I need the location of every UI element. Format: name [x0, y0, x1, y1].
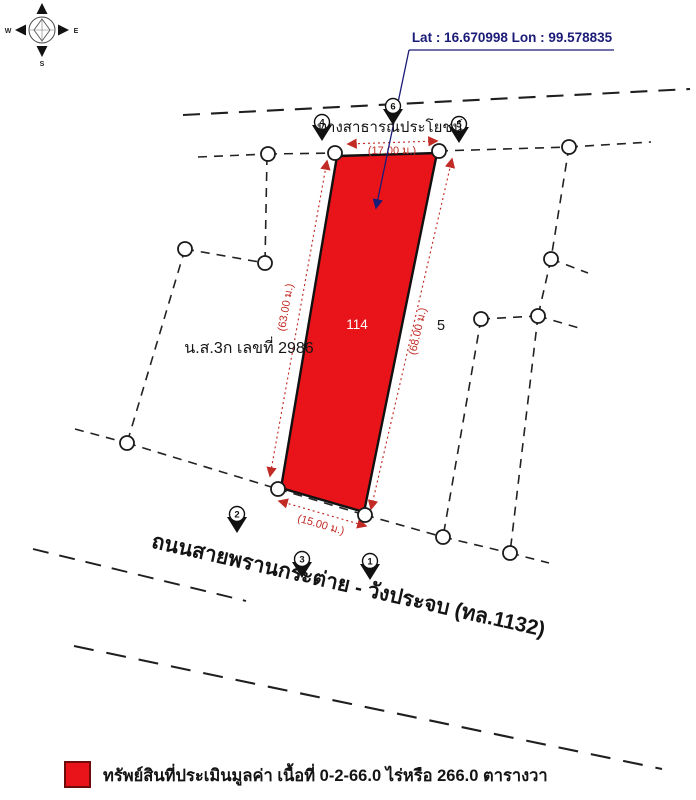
parcel-number-label: 114 [346, 317, 368, 332]
dimension-label-bottom: (15.00 ม.) [296, 513, 346, 538]
dimension-line-top [348, 141, 437, 144]
coordinates-label: Lat : 16.670998 Lon : 99.578835 [412, 30, 613, 45]
survey-map-page: (17.00 ม.) (63.00 ม.) (68.00 ม.) (15.00 … [0, 0, 696, 800]
compass-rose: W E S [5, 3, 79, 68]
survey-map-canvas: (17.00 ม.) (63.00 ม.) (68.00 ม.) (15.00 … [0, 0, 696, 800]
legend-label: ทรัพย์สินที่ประเมินมูลค่า เนื้อที่ 0-2-6… [103, 763, 548, 787]
photo-marker-6-number: 6 [390, 102, 395, 113]
dimension-label-top: (17.00 ม.) [368, 145, 416, 157]
photo-marker-2: 2 [227, 507, 247, 534]
legend: ทรัพย์สินที่ประเมินมูลค่า เนื้อที่ 0-2-6… [65, 762, 548, 787]
dimension-label-left: (63.00 ม.) [276, 283, 296, 333]
compass-south-letter: S [40, 61, 45, 68]
compass-east-letter: E [74, 28, 79, 35]
compass-west-letter: W [5, 28, 12, 35]
public-way-label: ทางสาธารณประโยชน์ [317, 118, 463, 136]
top-road-edge-line [183, 89, 690, 115]
dimension-label-right: (68.00 ม.) [407, 306, 430, 356]
bottom-road-lower-edge-line [74, 646, 662, 769]
compass-south-arrow [37, 46, 48, 57]
compass-east-arrow [58, 25, 69, 36]
road-name-label: ถนนสายพรานกระต่าย - วังประจบ (ทล.1132) [150, 530, 548, 642]
photo-marker-2-number: 2 [234, 510, 239, 521]
photo-marker-1-number: 1 [367, 557, 373, 568]
legend-swatch [65, 762, 90, 787]
adjacent-lot-number-label: 5 [437, 318, 445, 334]
compass-north-arrow [37, 3, 48, 14]
photo-marker-1: 1 [360, 554, 380, 581]
deed-number-label: น.ส.3ก เลขที่ 2986 [184, 336, 314, 357]
compass-west-arrow [15, 25, 26, 36]
